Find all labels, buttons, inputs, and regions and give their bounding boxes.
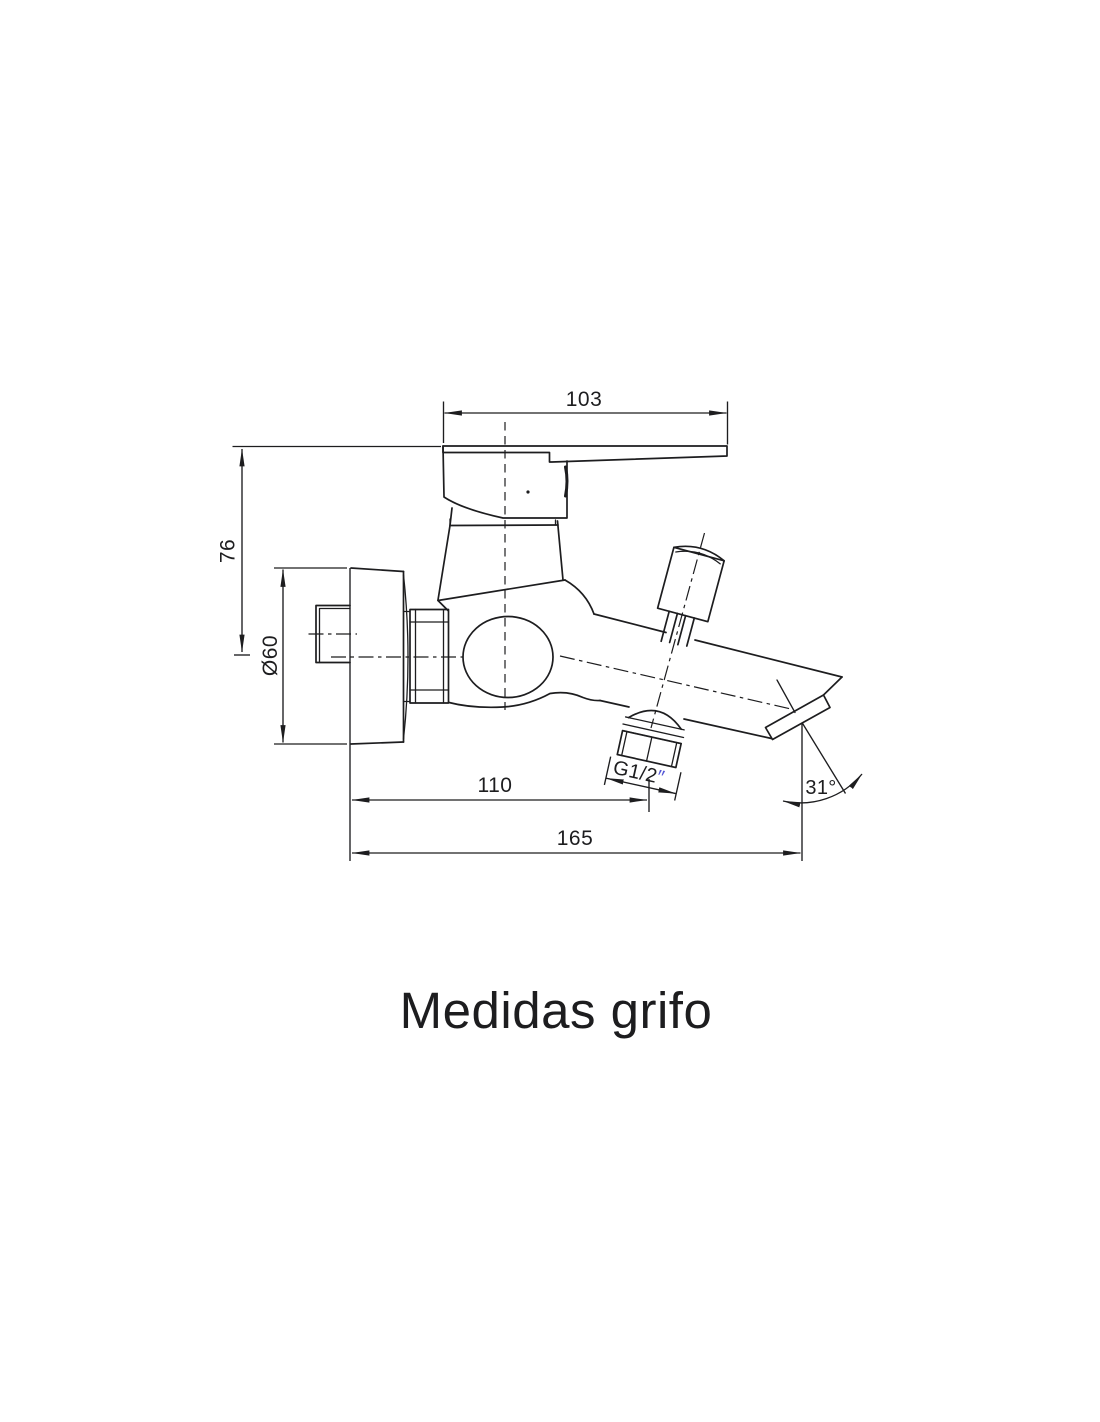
spout-mouth [766, 695, 831, 740]
dim-flange-diameter: Ø60 [259, 568, 347, 744]
valve-body [438, 580, 842, 740]
spout-top-edge [594, 614, 842, 677]
dim-label-165: 165 [557, 827, 594, 850]
centerlines [309, 422, 796, 728]
dim-spout-angle: 31° [783, 723, 862, 862]
dim-label-110: 110 [478, 774, 513, 797]
body-circle [463, 617, 553, 698]
spout-end-bevel [824, 677, 843, 695]
dim-outlet-thread: G1/2″ [604, 756, 681, 801]
cap-pivot-dot [526, 490, 529, 493]
cap-edge-highlight [566, 467, 568, 496]
flange-cone [351, 568, 408, 744]
dim-label-31deg: 31° [805, 777, 836, 799]
dim-label-d60: Ø60 [259, 635, 282, 676]
dim-shower-outlet-offset: 110 [352, 774, 649, 812]
cartridge-neck [438, 508, 563, 600]
drawing-title: Medidas grifo [400, 982, 713, 1039]
handle-lever [443, 446, 727, 462]
dim-label-76: 76 [217, 539, 240, 563]
faucet-outline [316, 446, 842, 861]
dim-label-103: 103 [566, 388, 603, 411]
faucet-dimension-drawing: 103 76 Ø60 110 165 G1/2″ 31° Medidas gri… [0, 0, 1100, 1422]
spout-bottom-edge [600, 701, 772, 739]
technical-drawing-page: 103 76 Ø60 110 165 G1/2″ 31° Medidas gri… [0, 0, 1100, 1422]
fitting-dome [629, 705, 684, 729]
connection-nut [404, 610, 449, 704]
dim-handle-length: 103 [444, 388, 728, 445]
dim-spout-reach: 165 [352, 827, 801, 853]
dim-label-g12: G1/2″ [611, 757, 666, 790]
